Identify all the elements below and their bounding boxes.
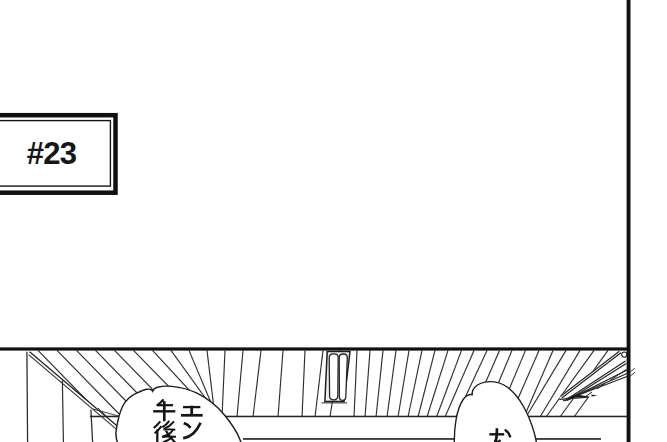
svg-text:#23: #23 — [27, 136, 77, 171]
